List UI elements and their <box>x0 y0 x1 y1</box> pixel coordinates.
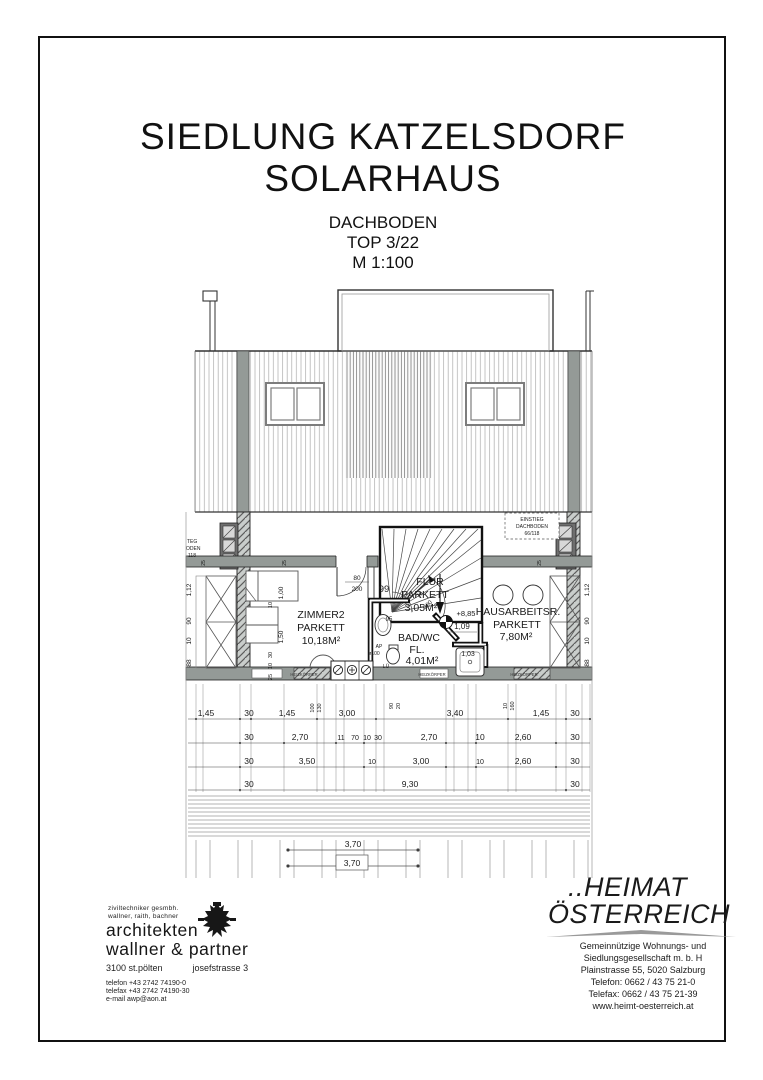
eave-lines <box>188 796 590 836</box>
dim-r2-6: 2,70 <box>421 732 438 742</box>
skylight-right <box>466 383 524 425</box>
lower-grid <box>196 840 588 878</box>
dim-r4-0: 30 <box>244 779 254 789</box>
dim-r1v-1: 130 <box>317 703 323 712</box>
dim-inner-3: 30 <box>268 652 274 658</box>
party-wall-roof-left <box>237 351 249 512</box>
dim-leftcol-0: 1,12 <box>186 583 193 596</box>
label-heizkoerper-1: HEIZKÖRPER <box>290 672 317 677</box>
dim-r3-1: 3,50 <box>299 756 316 766</box>
dim-bottom-1: 3,70 <box>344 858 361 868</box>
dim-r2-5: 30 <box>374 735 382 742</box>
dim-r3-5: 2,60 <box>515 756 532 766</box>
dim-95: 95 <box>386 617 393 623</box>
dim-r2-2: 11 <box>337 735 344 742</box>
dim-r2-9: 30 <box>570 732 580 742</box>
dim-r4-2: 30 <box>570 779 580 789</box>
dim-band-1: 25 <box>282 560 288 566</box>
room-bad-name: BAD/WC <box>398 632 440 644</box>
room-flur-name: FLUR <box>416 576 444 588</box>
insulation-left <box>196 576 236 668</box>
level-marker <box>440 616 453 629</box>
project-title-line2: SOLARHAUS <box>40 158 726 200</box>
dim-103: 1,03 <box>461 651 475 658</box>
parapet-outlines <box>203 290 594 351</box>
dim-inner-0: 1,00 <box>278 586 285 599</box>
dim-r3-3: 3,00 <box>413 756 430 766</box>
dim-rightcol-2: 10 <box>584 637 591 645</box>
dim-r1v-2: 90 <box>389 703 395 709</box>
level-value: +8,85 <box>457 609 476 618</box>
room-bad-area: 4,01M² <box>406 655 439 667</box>
heimat-telefon: Telefon: 0662 / 43 75 21-0 <box>543 976 743 988</box>
door-z-width: 80 <box>353 575 361 582</box>
hatch-left-l1: TEG <box>187 539 197 545</box>
architect-name-line1: architekten <box>106 921 198 940</box>
radiator-box <box>331 661 373 680</box>
dim-r1-0: 1,45 <box>198 708 215 718</box>
dim-r1v-5: 160 <box>510 701 516 710</box>
dim-band-2: 25 <box>537 560 543 566</box>
drawing-sheet: SIEDLUNG KATZELSDORF SOLARHAUS DACHBODEN… <box>0 0 763 1080</box>
dim-r2-1: 2,70 <box>292 732 309 742</box>
plan-name: DACHBODEN <box>40 213 726 233</box>
heimat-telefax: Telefax: 0662 / 43 75 21-39 <box>543 988 743 1000</box>
dim-inner-1: 10 <box>268 602 274 608</box>
label-heizkoerper-3: HEIZKÖRPER <box>510 672 537 677</box>
heimat-company-line1: Gemeinnützige Wohnungs- und <box>543 940 743 952</box>
toilet <box>387 645 400 664</box>
dim-bottom-0: 3,70 <box>345 839 362 849</box>
architect-eagle-logo <box>198 902 236 944</box>
dim-r1v-4: 10 <box>503 703 509 709</box>
dim-r2-8: 2,60 <box>515 732 532 742</box>
architect-email: e-mail awp@aon.at <box>106 996 166 1005</box>
hatch-right-l3: 66/118 <box>525 531 540 537</box>
room-zimmer2-area: 10,18M² <box>302 635 341 647</box>
label-ap: AP <box>376 644 383 650</box>
heimat-address: Plainstrasse 55, 5020 Salzburg <box>543 964 743 976</box>
dim-inner-5: 25 <box>268 674 274 680</box>
heimat-company-line2: Siedlungsgesellschaft m. b. H <box>543 952 743 964</box>
dim-r2-7: 10 <box>475 732 485 742</box>
label-lue: LÜ <box>383 663 390 670</box>
dim-r3-4: 10 <box>476 759 484 766</box>
bed <box>246 571 298 601</box>
dim-r1v-0: 100 <box>310 703 316 712</box>
dim-rightcol-0: 1,12 <box>584 583 591 596</box>
scale-label: M 1:100 <box>40 253 726 273</box>
heimat-logo-line2: ÖSTERREICH <box>548 901 730 928</box>
room-hausarbeit-name: HAUSARBEITSR. <box>476 606 561 618</box>
room-zimmer2-name: ZIMMER2 <box>297 609 344 621</box>
dim-r1-2: 1,45 <box>279 708 296 718</box>
dim-r1-1: 30 <box>244 708 254 718</box>
dryer <box>523 585 543 605</box>
dim-r1-5: 1,45 <box>533 708 550 718</box>
dim-leftcol-1: 90 <box>186 617 193 625</box>
room-hausarbeit-area: 7,80M² <box>500 631 533 643</box>
dim-rightcol-1: 90 <box>584 617 591 625</box>
dim-r2-3: 70 <box>351 735 359 742</box>
dim-109: 1,09 <box>454 622 470 631</box>
dim-rightcol-3: 88 <box>584 659 591 667</box>
hatch-left-l3: 118 <box>188 553 196 559</box>
dim-r4-1: 9,30 <box>402 779 419 789</box>
heimat-roof-graphic <box>546 927 736 939</box>
dim-r2-0: 30 <box>244 732 254 742</box>
dim-leftcol-3: 88 <box>186 659 193 667</box>
party-wall-roof-right <box>568 351 580 512</box>
label-d100: ø100 <box>368 651 380 657</box>
project-title-line1: SIEDLUNG KATZELSDORF <box>40 116 726 158</box>
room-zimmer2-floor: PARKETT <box>297 622 345 634</box>
label-heizkoerper-2: HEIZKÖRPER <box>418 672 445 677</box>
architect-city: 3100 st.pölten <box>106 963 163 973</box>
floor-plan: ZIMMER2 PARKETT 10,18M² FLUR PARKETT 3,0… <box>182 278 602 888</box>
dim-r2-4: 10 <box>363 735 371 742</box>
hatch-right-l2: DACHBODEN <box>516 524 548 530</box>
dim-r3-2: 10 <box>368 759 376 766</box>
dim-inner-2: 1,50 <box>278 630 285 643</box>
dim-r1v-3: 20 <box>396 703 402 709</box>
room-hausarbeit-floor: PARKETT <box>493 619 541 631</box>
heimat-logo-line1: ..HEIMAT <box>568 874 687 901</box>
hatch-left-l2: ODEN <box>186 546 201 552</box>
architect-firm-type: ziviltechniker gesmbh. <box>108 905 179 913</box>
dim-r1-6: 30 <box>570 708 580 718</box>
dim-r3-6: 30 <box>570 756 580 766</box>
wardrobe <box>246 607 278 643</box>
dim-r3-0: 30 <box>244 756 254 766</box>
dim-r1-4: 3,40 <box>447 708 464 718</box>
dim-leftcol-2: 10 <box>186 637 193 645</box>
washing-machine <box>493 585 513 605</box>
unit-number: TOP 3/22 <box>40 233 726 253</box>
dim-r1-3: 3,00 <box>339 708 356 718</box>
dim-inner-4: 10 <box>268 663 274 669</box>
hatch-right-l1: EINSTIEG <box>520 517 543 523</box>
skylight-left <box>266 383 324 425</box>
room-flur-floor: PARKETT <box>401 589 449 601</box>
dim-stair-width: 99 <box>379 584 390 595</box>
heimat-website: www.heimt-oesterreich.at <box>543 1000 743 1012</box>
door-z-height: 200 <box>352 586 363 593</box>
architect-street: josefstrasse 3 <box>193 963 249 973</box>
roof-hatching <box>195 351 592 512</box>
dimension-ticks <box>195 718 591 791</box>
dim-band-0: 25 <box>201 560 207 566</box>
